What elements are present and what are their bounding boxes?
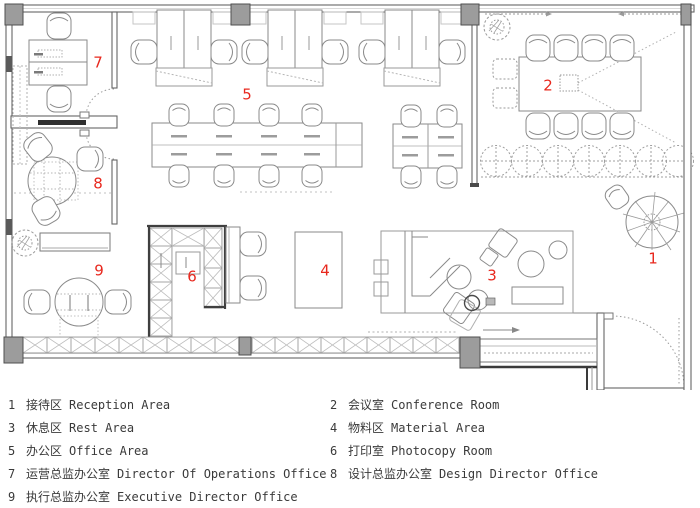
area-label-2: 2 xyxy=(543,79,553,94)
legend-item-1: 1 接待区 Reception Area xyxy=(8,393,327,416)
plant-icon xyxy=(12,230,38,256)
legend-label-en: Office Area xyxy=(69,444,148,458)
legend-num: 3 xyxy=(8,421,26,435)
legend-item-9: 9 执行总监办公室 Executive Director Office xyxy=(8,485,327,508)
legend-item-3: 3 休息区 Rest Area xyxy=(8,416,327,439)
area-label-5: 5 xyxy=(242,88,252,103)
area-label-3: 3 xyxy=(487,269,497,284)
material-area xyxy=(295,232,342,308)
sideboard xyxy=(40,233,110,251)
legend-num: 6 xyxy=(330,444,348,458)
legend-label-en: Reception Area xyxy=(69,398,170,412)
legend-column-left: 1 接待区 Reception Area 3 休息区 Rest Area 5 办… xyxy=(8,393,327,508)
office-area xyxy=(131,10,465,188)
legend-num: 2 xyxy=(330,398,348,412)
legend-label-en: Design Director Office xyxy=(439,467,598,481)
legend-item-8: 8 设计总监办公室 Design Director Office xyxy=(330,462,598,485)
legend-item-5: 5 办公区 Office Area xyxy=(8,439,327,462)
legend-label-en: Rest Area xyxy=(69,421,134,435)
room-executive-office xyxy=(24,278,131,338)
right-wall xyxy=(684,5,691,390)
rest-area xyxy=(368,228,573,333)
legend-num: 5 xyxy=(8,444,26,458)
legend-item-2: 2 会议室 Conference Room xyxy=(330,393,598,416)
area-label-9: 9 xyxy=(94,264,104,279)
conference-room xyxy=(484,12,684,144)
area-label-4: 4 xyxy=(320,264,330,279)
legend-item-7: 7 运营总监办公室 Director Of Operations Office xyxy=(8,462,327,485)
legend-column-right: 2 会议室 Conference Room 4 物料区 Material Are… xyxy=(330,393,598,485)
room-design-office xyxy=(21,129,103,228)
legend-label-zh: 物料区 xyxy=(348,419,384,436)
legend-label-zh: 设计总监办公室 xyxy=(348,465,432,482)
folding-partition xyxy=(481,146,694,178)
legend-num: 7 xyxy=(8,467,26,481)
area-label-1: 1 xyxy=(648,252,658,267)
floor-plan: 1 2 3 4 5 6 7 8 9 xyxy=(0,0,700,390)
legend-label-en: Director Of Operations Office xyxy=(117,467,327,481)
reception-area xyxy=(602,182,684,250)
legend-label-en: Photocopy Room xyxy=(391,444,492,458)
entrance-door xyxy=(604,313,684,388)
legend-label-zh: 打印室 xyxy=(348,442,384,459)
floor-plan-svg xyxy=(0,0,700,390)
legend-label-zh: 执行总监办公室 xyxy=(26,488,110,505)
legend-label-en: Conference Room xyxy=(391,398,499,412)
legend-num: 4 xyxy=(330,421,348,435)
legend-label-zh: 休息区 xyxy=(26,419,62,436)
legend-item-4: 4 物料区 Material Area xyxy=(330,416,598,439)
area-label-8: 8 xyxy=(93,177,103,192)
legend-label-zh: 会议室 xyxy=(348,396,384,413)
legend-label-zh: 运营总监办公室 xyxy=(26,465,110,482)
legend-num: 9 xyxy=(8,490,26,504)
legend-label-zh: 办公区 xyxy=(26,442,62,459)
legend-label-zh: 接待区 xyxy=(26,396,62,413)
legend-num: 1 xyxy=(8,398,26,412)
legend-num: 8 xyxy=(330,467,348,481)
counter-desk xyxy=(226,227,266,303)
area-label-7: 7 xyxy=(93,56,103,71)
floor-plan-page: 1 2 3 4 5 6 7 8 9 1 接待区 Reception Area 3… xyxy=(0,0,700,508)
room-operations-office xyxy=(13,13,87,164)
legend-label-en: Executive Director Office xyxy=(117,490,298,504)
legend-label-en: Material Area xyxy=(391,421,485,435)
legend-item-6: 6 打印室 Photocopy Room xyxy=(330,439,598,462)
plant-icon xyxy=(484,14,510,40)
area-label-6: 6 xyxy=(187,270,197,285)
